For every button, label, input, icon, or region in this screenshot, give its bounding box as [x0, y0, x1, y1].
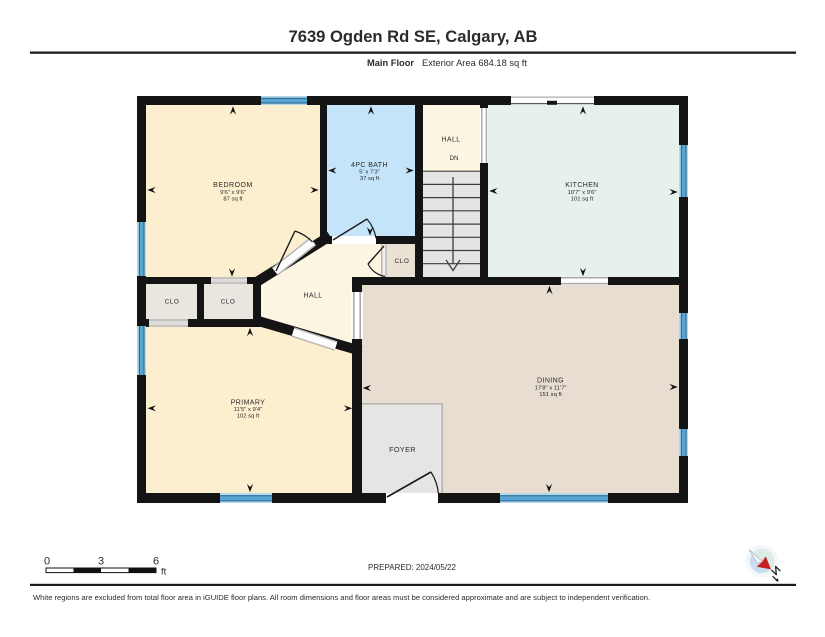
svg-text:0: 0 — [44, 556, 50, 568]
svg-text:HALL: HALL — [441, 137, 460, 144]
svg-text:Main Floor: Main Floor — [367, 58, 414, 68]
svg-text:9'6" x 9'6": 9'6" x 9'6" — [220, 190, 246, 196]
svg-text:11'5" x 9'4": 11'5" x 9'4" — [234, 407, 263, 413]
svg-text:4PC BATH: 4PC BATH — [351, 162, 388, 169]
svg-text:CLO: CLO — [165, 299, 180, 306]
svg-text:PRIMARY: PRIMARY — [231, 399, 266, 406]
svg-text:Exterior Area 684.18 sq ft: Exterior Area 684.18 sq ft — [422, 58, 527, 68]
svg-text:White regions are excluded fro: White regions are excluded from total fl… — [33, 593, 650, 602]
svg-text:17'8" x 11'7": 17'8" x 11'7" — [535, 385, 567, 391]
svg-text:6: 6 — [153, 556, 159, 568]
svg-text:151 sq ft: 151 sq ft — [539, 392, 562, 398]
svg-text:3: 3 — [98, 556, 104, 568]
svg-text:7639 Ogden Rd SE, Calgary, AB: 7639 Ogden Rd SE, Calgary, AB — [289, 27, 538, 46]
svg-text:101 sq ft: 101 sq ft — [571, 197, 594, 203]
svg-text:HALL: HALL — [303, 293, 322, 300]
svg-text:DN: DN — [450, 155, 459, 162]
svg-text:5' x 7'3": 5' x 7'3" — [359, 170, 379, 176]
svg-text:102 sq ft: 102 sq ft — [237, 414, 260, 420]
svg-text:KITCHEN: KITCHEN — [565, 182, 599, 189]
svg-text:CLO: CLO — [395, 258, 410, 265]
svg-text:37 sq ft: 37 sq ft — [360, 176, 380, 182]
svg-text:ft: ft — [161, 567, 167, 578]
svg-text:CLO: CLO — [221, 299, 236, 306]
svg-text:FOYER: FOYER — [389, 445, 416, 454]
svg-text:DINING: DINING — [537, 377, 564, 384]
svg-text:87 sq ft: 87 sq ft — [223, 196, 243, 202]
svg-text:10'7" x 9'6": 10'7" x 9'6" — [567, 190, 596, 196]
svg-text:PREPARED: 2024/05/22: PREPARED: 2024/05/22 — [368, 563, 456, 572]
svg-text:BEDROOM: BEDROOM — [213, 182, 253, 189]
